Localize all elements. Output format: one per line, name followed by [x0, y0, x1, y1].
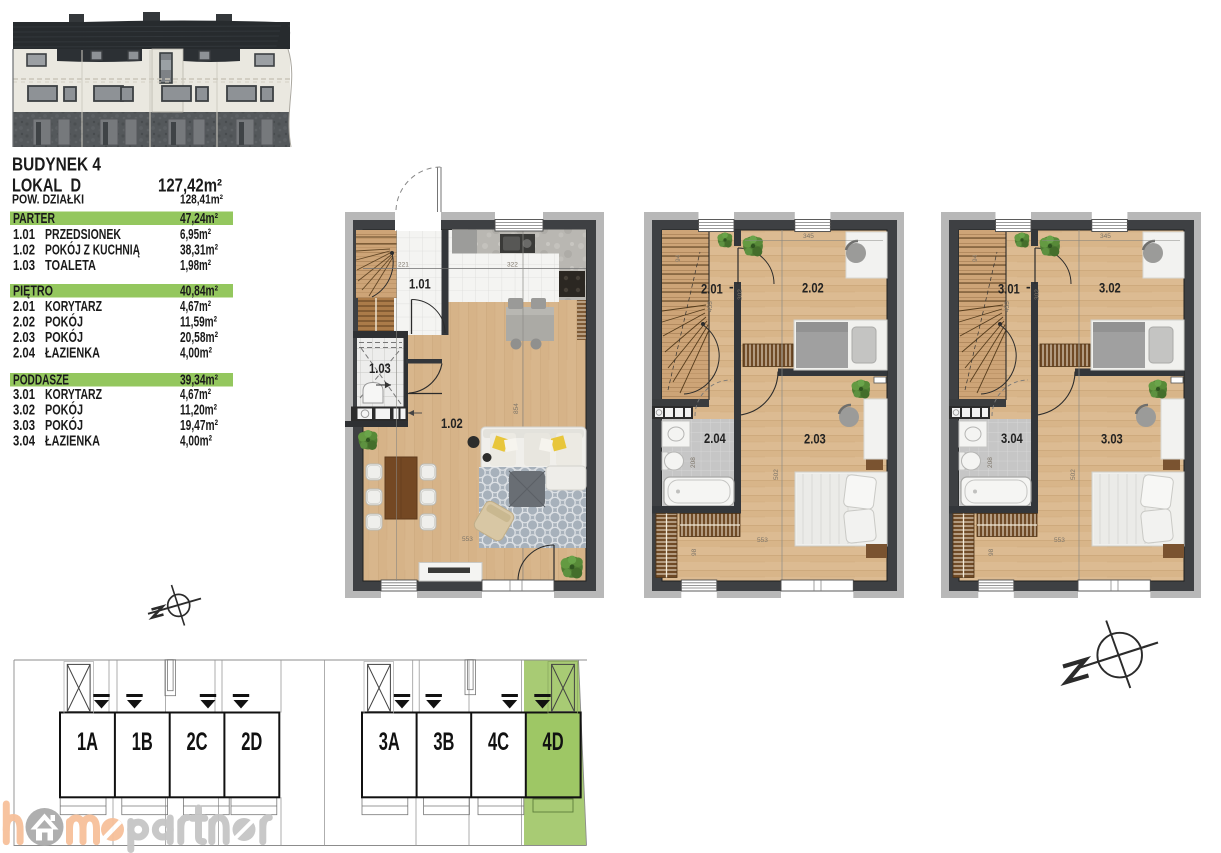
svg-text:11,59m²: 11,59m² [180, 314, 217, 331]
svg-text:POKÓJ: POKÓJ [45, 401, 83, 419]
svg-text:1.03: 1.03 [369, 361, 391, 376]
svg-text:ŁAZIENKA: ŁAZIENKA [45, 433, 100, 450]
svg-text:PARTER: PARTER [13, 211, 55, 227]
svg-text:1.02: 1.02 [13, 242, 35, 259]
svg-text:2.01: 2.01 [13, 298, 35, 315]
svg-text:2.04: 2.04 [13, 345, 35, 362]
svg-text:47,24m²: 47,24m² [180, 211, 218, 227]
svg-text:2.03: 2.03 [13, 329, 35, 346]
svg-text:2.02: 2.02 [802, 280, 824, 295]
svg-text:4,00m²: 4,00m² [180, 345, 212, 362]
svg-text:4,67m²: 4,67m² [180, 386, 211, 403]
svg-text:3.03: 3.03 [13, 417, 35, 434]
svg-text:ŁAZIENKA: ŁAZIENKA [45, 345, 100, 362]
svg-text:POW. DZIAŁKI: POW. DZIAŁKI [12, 193, 84, 207]
svg-text:PRZEDSIONEK: PRZEDSIONEK [45, 226, 121, 243]
svg-text:302: 302 [737, 289, 744, 300]
svg-text:208: 208 [690, 457, 697, 468]
svg-text:19,47m²: 19,47m² [180, 417, 218, 434]
svg-text:553: 553 [462, 536, 473, 543]
svg-text:3.02: 3.02 [13, 402, 35, 419]
svg-text:-: - [1026, 279, 1031, 295]
svg-text:3A: 3A [379, 729, 400, 756]
svg-text:4C: 4C [488, 729, 509, 756]
svg-text:2.02: 2.02 [13, 314, 35, 331]
svg-text:4,00m²: 4,00m² [180, 433, 212, 450]
svg-text:221: 221 [398, 262, 409, 269]
svg-text:128,41m²: 128,41m² [180, 193, 223, 207]
svg-text:POKÓJ: POKÓJ [45, 416, 83, 434]
svg-text:854: 854 [513, 403, 520, 414]
svg-text:1.02: 1.02 [441, 416, 463, 431]
svg-text:20,58m²: 20,58m² [180, 329, 218, 346]
svg-text:3B: 3B [433, 729, 454, 756]
svg-text:3.03: 3.03 [1101, 431, 1123, 446]
svg-text:3.02: 3.02 [1099, 280, 1121, 295]
svg-text:38,31m²: 38,31m² [180, 242, 218, 259]
svg-text:3.01: 3.01 [998, 281, 1020, 296]
svg-text:1.01: 1.01 [409, 276, 431, 291]
svg-text:KORYTARZ: KORYTARZ [45, 386, 102, 403]
svg-text:94: 94 [675, 254, 682, 262]
svg-text:453: 453 [707, 301, 714, 312]
svg-text:2.03: 2.03 [804, 431, 826, 446]
svg-text:1,98m²: 1,98m² [180, 257, 211, 274]
svg-text:KORYTARZ: KORYTARZ [45, 298, 102, 315]
svg-text:-: - [729, 279, 734, 295]
svg-text:2D: 2D [241, 729, 262, 756]
svg-text:2.01: 2.01 [701, 281, 723, 296]
svg-text:345: 345 [803, 233, 814, 240]
svg-text:3.04: 3.04 [13, 433, 35, 450]
svg-text:11,20m²: 11,20m² [180, 402, 217, 419]
svg-text:502: 502 [773, 469, 780, 480]
svg-text:1.01: 1.01 [13, 226, 35, 243]
svg-text:1B: 1B [132, 729, 153, 756]
svg-text:POKÓJ: POKÓJ [45, 313, 83, 331]
svg-text:3.01: 3.01 [13, 386, 35, 403]
svg-text:98: 98 [691, 548, 698, 556]
svg-text:1A: 1A [77, 729, 98, 756]
svg-text:POKÓJ Z KUCHNIĄ: POKÓJ Z KUCHNIĄ [45, 241, 140, 259]
svg-text:3.04: 3.04 [1001, 431, 1023, 446]
svg-text:TOALETA: TOALETA [45, 257, 96, 274]
svg-text:2.04: 2.04 [704, 431, 726, 446]
svg-text:POKÓJ: POKÓJ [45, 328, 83, 346]
svg-text:2C: 2C [186, 729, 207, 756]
svg-text:4,67m²: 4,67m² [180, 298, 211, 315]
svg-text:553: 553 [757, 537, 768, 544]
svg-text:BUDYNEK 4: BUDYNEK 4 [12, 155, 101, 175]
svg-text:322: 322 [507, 262, 518, 269]
svg-text:1.03: 1.03 [13, 257, 35, 274]
svg-text:4D: 4D [543, 729, 564, 756]
svg-text:6,95m²: 6,95m² [180, 226, 211, 243]
